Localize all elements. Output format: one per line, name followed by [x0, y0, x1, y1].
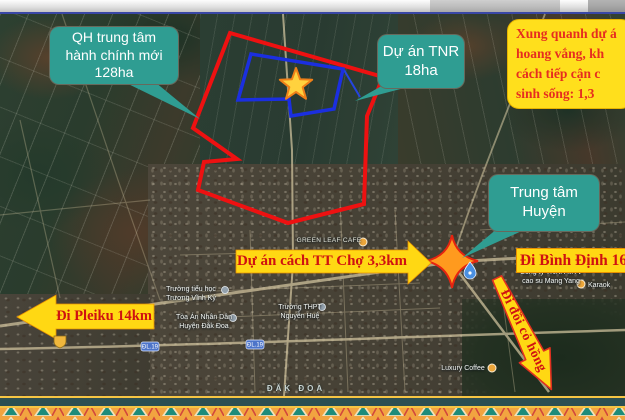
window-top-bar: [0, 0, 625, 14]
poi-label-primary-school: Trường tiểu học Trương Vĩnh Ký: [166, 285, 216, 303]
info-line4: sinh sống: 1,3: [516, 84, 625, 104]
callout-tnr-line1: Dự án TNR: [383, 43, 459, 62]
binh-dinh-distance-label: Đi Bình Định 16: [516, 248, 625, 273]
poi-label-high-school: Trường THPT Nguyễn Huệ: [278, 303, 322, 321]
callout-tnr-project: Dự án TNR 18ha: [377, 34, 465, 89]
info-line2: hoang vắng, kh: [516, 44, 625, 64]
market-distance-label: Dự án cách TT Chợ 3,3km: [236, 250, 408, 273]
rubber-company-line2: cao su Mang Yang: [520, 277, 582, 286]
callout-admin-center: QH trung tâm hành chính mới 128ha: [49, 26, 179, 85]
decorative-bottom-border: [0, 396, 625, 420]
callout-district-line1: Trung tâm: [510, 184, 578, 203]
poi-label-cafe: GREEN LEAF CAFE: [297, 237, 362, 245]
primary-school-line2: Trương Vĩnh Ký: [166, 294, 216, 303]
callout-district-line2: Huyện: [522, 203, 565, 222]
surroundings-info-box: Xung quanh dự á hoang vắng, kh cách tiếp…: [507, 19, 625, 109]
primary-school-line1: Trường tiểu học: [166, 285, 216, 294]
info-line1: Xung quanh dự á: [516, 24, 625, 44]
court-line1: Tòa Án Nhân Dân: [176, 313, 232, 322]
high-school-line2: Nguyễn Huệ: [278, 312, 322, 321]
court-line2: Huyện Đắk Đoa: [176, 322, 232, 331]
callout-district-center: Trung tâm Huyện: [488, 174, 600, 232]
top-bar-corner: [588, 0, 625, 12]
high-school-line1: Trường THPT: [278, 303, 322, 312]
callout-admin-line1: QH trung tâm: [72, 29, 156, 47]
info-line3: cách tiếp cận c: [516, 64, 625, 84]
callout-tnr-line2: 18ha: [404, 62, 437, 81]
map-advert-screenshot: ĐL.19 ĐL.19 QH trung tâm hành chính mới …: [0, 0, 625, 420]
poi-label-karaoke: Karaok: [588, 281, 610, 290]
top-bar-shade: [430, 0, 560, 12]
poi-label-coffee: Luxury Coffee: [441, 364, 484, 373]
callout-admin-line2: hành chính mới: [65, 47, 162, 65]
callout-admin-line3: 128ha: [95, 64, 134, 82]
poi-label-court: Tòa Án Nhân Dân Huyện Đắk Đoa: [176, 313, 232, 331]
area-name-label: ĐĂK ĐOA: [267, 384, 325, 393]
pleiku-distance-label: Đi Pleiku 14km: [54, 304, 154, 329]
